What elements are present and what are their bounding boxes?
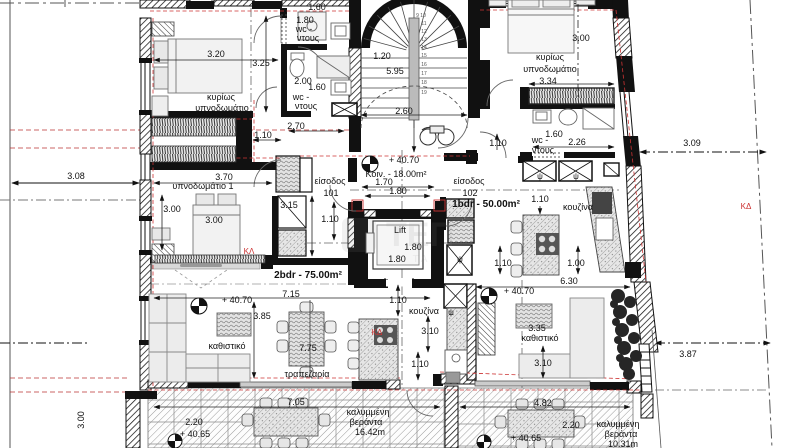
svg-text:ψ: ψ	[573, 172, 579, 181]
svg-text:βεράντα: βεράντα	[350, 417, 383, 427]
svg-text:1.10: 1.10	[321, 214, 339, 224]
svg-text:6.30: 6.30	[560, 276, 578, 286]
svg-text:+ 40.65: + 40.65	[511, 433, 541, 443]
svg-text:1.80: 1.80	[388, 254, 406, 264]
svg-text:ψ: ψ	[448, 308, 454, 317]
svg-text:16: 16	[421, 62, 427, 68]
svg-text:+ 40.70: + 40.70	[389, 155, 419, 165]
svg-text:3.85: 3.85	[253, 311, 271, 321]
svg-text:7.05: 7.05	[287, 397, 305, 407]
svg-text:ΤΕΠ: ΤΕΠ	[386, 216, 454, 254]
svg-text:1.10: 1.10	[489, 138, 507, 148]
svg-text:13: 13	[421, 37, 427, 43]
svg-text:3.15: 3.15	[280, 200, 298, 210]
svg-text:7.15: 7.15	[282, 289, 300, 299]
svg-text:είσοδος: είσοδος	[454, 176, 486, 186]
svg-text:11: 11	[421, 21, 426, 27]
svg-text:3.00: 3.00	[572, 33, 590, 43]
svg-text:καθιστικό: καθιστικό	[521, 333, 558, 343]
svg-text:κουζίνα: κουζίνα	[563, 202, 593, 212]
svg-text:101: 101	[323, 188, 338, 198]
svg-text:1.80: 1.80	[389, 186, 407, 196]
svg-text:Τ Α: Τ Α	[413, 254, 428, 265]
svg-text:είσοδος: είσοδος	[315, 176, 347, 186]
svg-text:ψ: ψ	[537, 172, 543, 181]
svg-text:18: 18	[421, 80, 427, 86]
svg-text:ψ: ψ	[457, 255, 463, 264]
svg-text:2.70: 2.70	[287, 121, 305, 131]
svg-text:τραπεζαρία: τραπεζαρία	[285, 369, 330, 379]
svg-text:υπνοδωμάτιο: υπνοδωμάτιο	[523, 64, 577, 74]
svg-text:3.34: 3.34	[539, 76, 557, 86]
svg-text:1.10: 1.10	[531, 194, 549, 204]
svg-text:κυρίως: κυρίως	[536, 52, 565, 62]
svg-text:ΚΔ: ΚΔ	[741, 202, 752, 211]
svg-text:1.10: 1.10	[254, 130, 272, 140]
svg-text:3.00: 3.00	[163, 204, 181, 214]
svg-text:καλυμμένη: καλυμμένη	[597, 419, 640, 429]
svg-text:2.60: 2.60	[395, 106, 413, 116]
svg-text:3.25: 3.25	[252, 58, 270, 68]
svg-text:καλυμμένη: καλυμμένη	[347, 407, 390, 417]
svg-text:κουζίνα: κουζίνα	[409, 306, 439, 316]
svg-text:14: 14	[421, 45, 427, 51]
svg-text:2.20: 2.20	[185, 417, 203, 427]
svg-text:3.00: 3.00	[76, 411, 86, 429]
svg-text:19: 19	[421, 90, 427, 96]
svg-text:ΚΔ: ΚΔ	[372, 328, 383, 337]
svg-text:1bdr - 50.00m²: 1bdr - 50.00m²	[452, 199, 520, 210]
svg-text:3.10: 3.10	[421, 326, 439, 336]
svg-text:3.35: 3.35	[528, 323, 546, 333]
svg-text:3.08: 3.08	[67, 171, 85, 181]
svg-text:2bdr - 75.00m²: 2bdr - 75.00m²	[274, 270, 342, 281]
svg-text:3.87: 3.87	[679, 349, 697, 359]
svg-text:1.10: 1.10	[389, 295, 407, 305]
svg-text:2.20: 2.20	[562, 420, 580, 430]
svg-text:1.00: 1.00	[567, 258, 585, 268]
svg-text:+ 40.70: + 40.70	[504, 286, 534, 296]
svg-text:ΚΛ: ΚΛ	[244, 247, 255, 256]
svg-text:2.26: 2.26	[568, 137, 586, 147]
svg-text:7.75: 7.75	[299, 343, 317, 353]
svg-text:3.20: 3.20	[207, 49, 225, 59]
svg-text:ντους: ντους	[295, 101, 318, 111]
svg-text:+ 40.65: + 40.65	[180, 429, 210, 439]
svg-text:wc -: wc -	[531, 135, 549, 145]
svg-text:5.95: 5.95	[386, 66, 404, 76]
svg-text:17: 17	[421, 71, 427, 77]
svg-text:9 10: 9 10	[416, 13, 426, 19]
svg-text:ντους: ντους	[532, 145, 555, 155]
svg-text:υπνοδωμάτιο: υπνοδωμάτιο	[195, 103, 249, 113]
svg-text:καθιστικό: καθιστικό	[208, 341, 245, 351]
svg-text:βεράντα: βεράντα	[605, 429, 638, 439]
svg-text:ντους: ντους	[297, 33, 320, 43]
svg-text:12: 12	[421, 29, 427, 35]
svg-text:10.31m: 10.31m	[608, 439, 638, 448]
svg-text:1.60: 1.60	[308, 82, 326, 92]
svg-text:3.09: 3.09	[683, 138, 701, 148]
svg-text:16.42m: 16.42m	[355, 427, 385, 437]
svg-text:κυρίως: κυρίως	[207, 92, 236, 102]
svg-text:102: 102	[462, 188, 477, 198]
svg-text:1.20: 1.20	[373, 51, 391, 61]
svg-text:+ 40.70: + 40.70	[222, 295, 252, 305]
svg-text:4.82: 4.82	[534, 398, 552, 408]
svg-text:15: 15	[421, 53, 427, 59]
svg-text:1.10: 1.10	[411, 359, 429, 369]
svg-text:3.00: 3.00	[205, 215, 223, 225]
svg-text:3.10: 3.10	[534, 358, 552, 368]
svg-text:1.10: 1.10	[494, 258, 512, 268]
svg-text:1.60: 1.60	[308, 2, 326, 12]
svg-text:υπνοδωμάτιο 1: υπνοδωμάτιο 1	[172, 181, 233, 191]
